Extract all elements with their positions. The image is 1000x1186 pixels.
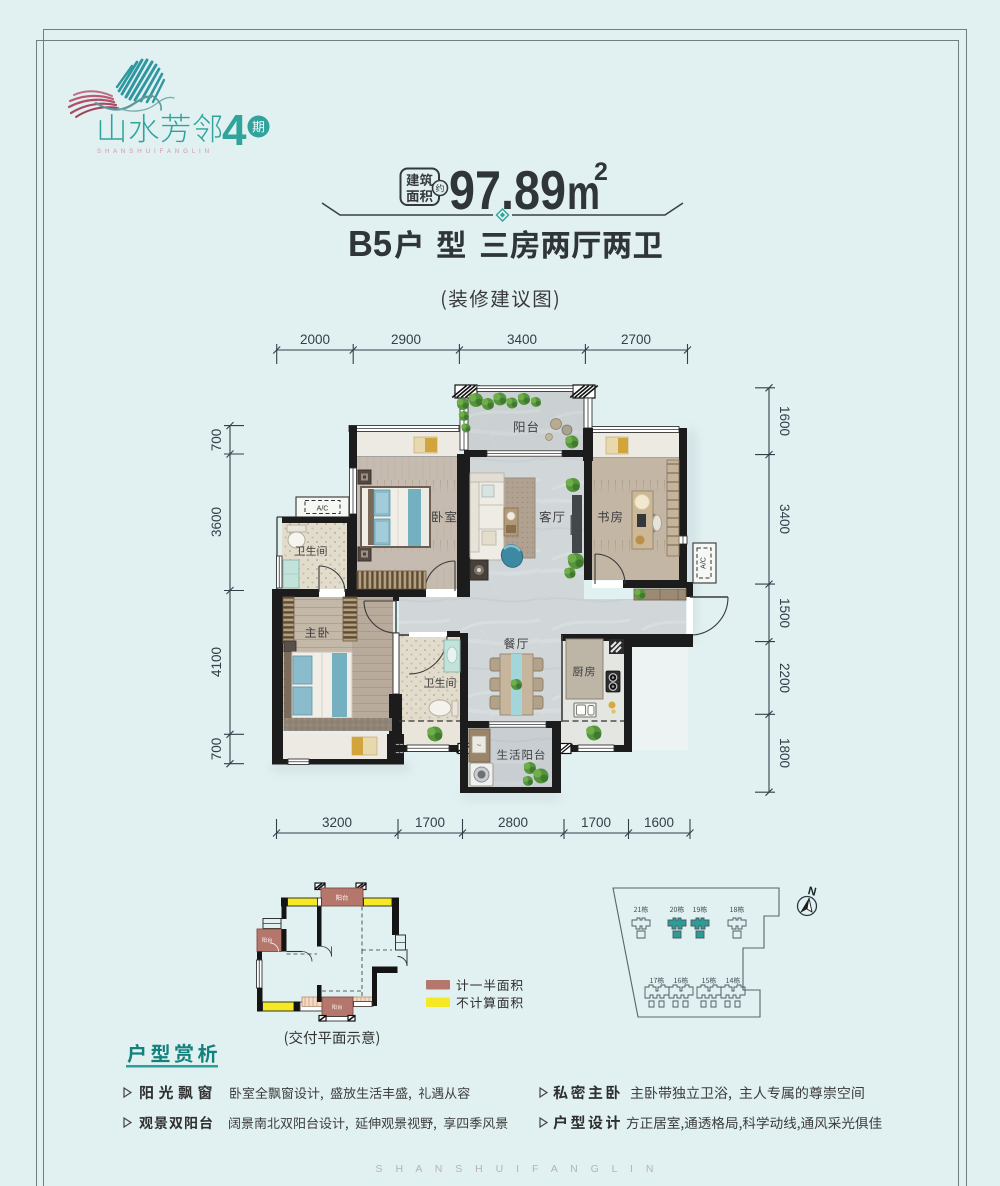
- svg-text:1600: 1600: [644, 815, 674, 830]
- svg-text:2200: 2200: [777, 663, 792, 693]
- svg-text:2000: 2000: [300, 332, 330, 347]
- svg-text:2700: 2700: [621, 332, 651, 347]
- svg-text:700: 700: [209, 738, 224, 761]
- svg-text:97.89: 97.89: [449, 159, 566, 221]
- svg-text:B5: B5: [348, 223, 392, 264]
- svg-text:2900: 2900: [391, 332, 421, 347]
- svg-text:1700: 1700: [415, 815, 445, 830]
- svg-text:S H A N S H U I F A N G L I N: S H A N S H U I F A N G L I N: [376, 1163, 659, 1175]
- svg-text:3600: 3600: [209, 507, 224, 537]
- svg-text:S H A N S H U I F A N G: S H A N S H U I F A N G L I N: [97, 148, 210, 155]
- svg-text:1500: 1500: [777, 598, 792, 628]
- svg-text:A/C: A/C: [317, 506, 329, 513]
- svg-text:3200: 3200: [322, 815, 352, 830]
- svg-text:~: ~: [477, 741, 482, 750]
- svg-text:4100: 4100: [209, 647, 224, 677]
- svg-text:3400: 3400: [507, 332, 537, 347]
- svg-text:2: 2: [594, 158, 608, 186]
- svg-text:1800: 1800: [777, 738, 792, 768]
- svg-text:3400: 3400: [777, 504, 792, 534]
- svg-text:700: 700: [209, 429, 224, 452]
- svg-text:2800: 2800: [498, 815, 528, 830]
- svg-text:4: 4: [222, 106, 247, 155]
- svg-text:1700: 1700: [581, 815, 611, 830]
- svg-text:1600: 1600: [777, 406, 792, 436]
- svg-text:A/C: A/C: [701, 557, 708, 569]
